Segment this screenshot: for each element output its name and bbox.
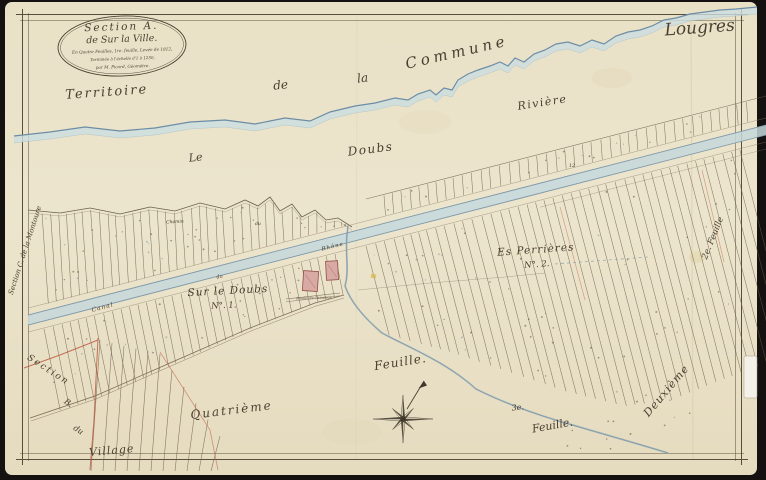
scanned-cadastral-map: Section A. de Sur la Ville. En Quatre Fe… (0, 0, 766, 480)
map-canvas: Section A. de Sur la Ville. En Quatre Fe… (0, 0, 766, 480)
label-lieu-no2: N°. 2. (523, 259, 550, 271)
label-sticker (744, 356, 757, 398)
label-la: la (356, 70, 368, 85)
label-le: Le (187, 150, 204, 165)
paper-sheet (5, 2, 757, 475)
label-parcel-number-12: 12 (569, 163, 575, 169)
label-chemin-du: du (255, 221, 261, 227)
label-de: de (272, 77, 288, 92)
label-chemin: Chemin (166, 219, 184, 226)
label-lieu-no1: N°. 1. (210, 300, 237, 311)
label-feuille3-num: 3e. (511, 402, 524, 412)
